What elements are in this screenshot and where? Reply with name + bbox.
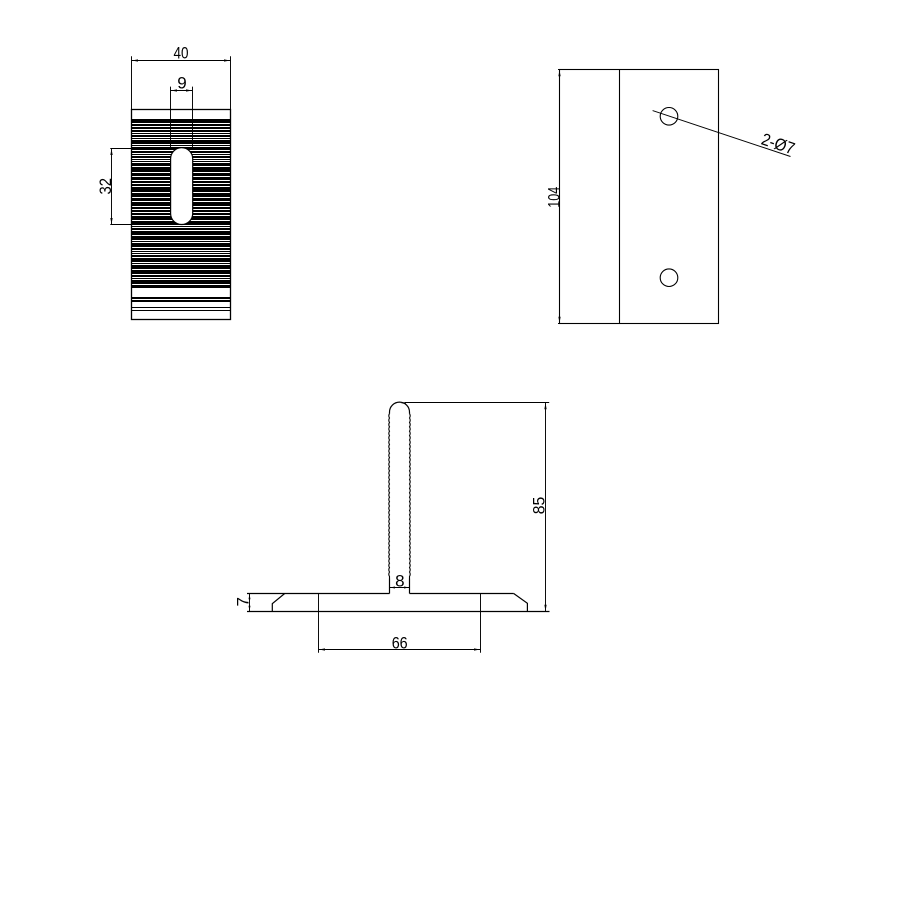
svg-text:7: 7 <box>233 597 252 606</box>
svg-text:9: 9 <box>177 74 186 93</box>
svg-text:85: 85 <box>529 497 548 515</box>
svg-text:40: 40 <box>174 43 189 62</box>
svg-text:66: 66 <box>392 634 408 653</box>
svg-text:8: 8 <box>395 571 404 590</box>
svg-text:32: 32 <box>96 178 115 195</box>
svg-text:104: 104 <box>544 187 563 208</box>
